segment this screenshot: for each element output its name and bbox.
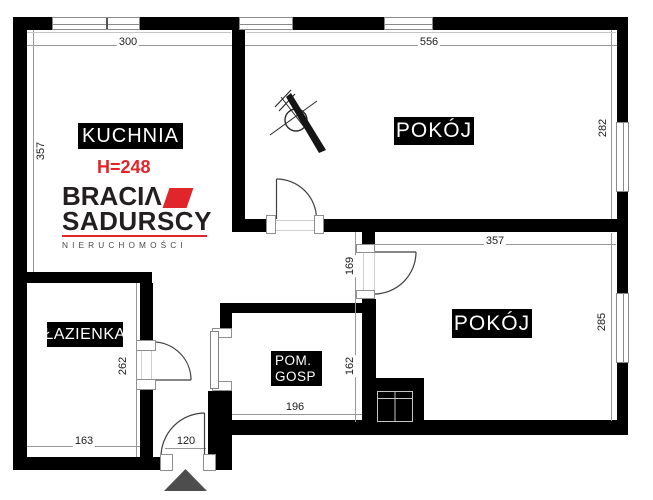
door-jamb-bathroom-bottom (136, 379, 156, 390)
dim-bathroom-width: 163 (73, 435, 95, 447)
wardrobe-icon (378, 392, 413, 422)
dim-kitchen-width: 300 (117, 36, 139, 48)
dim-bathroom-height: 262 (117, 355, 129, 377)
room-label-roomtop: POKÓJ (394, 117, 474, 145)
dim-kitchen-height: 357 (35, 140, 47, 162)
door-bathroom (153, 342, 191, 380)
room-label-bathroom: ŁAZIENKA (47, 322, 123, 347)
entrance-marker-icon (164, 469, 207, 491)
room-label-roombottom: POKÓJ (452, 309, 532, 338)
dim-roomtop-width: 556 (418, 36, 440, 48)
door-roomtop (277, 179, 317, 219)
dim-roombottom-height: 285 (596, 311, 608, 333)
door-roombottom (374, 252, 416, 294)
logo-line3: NIERUCHOMOŚCI (62, 240, 210, 250)
door-jamb-entrance-right (203, 454, 216, 471)
logo-red-flag-icon (162, 188, 193, 208)
door-jamb-roomtop-right (314, 215, 324, 234)
door-jamb-roombottom-top (356, 244, 375, 253)
room-label-kitchen: KUCHNIA (78, 123, 183, 149)
dim-roombottom-width: 357 (484, 235, 506, 247)
floor-plan: 300 556 357 282 357 285 169 162 262 163 … (0, 0, 653, 500)
room-label-utility: POM. GOSP (271, 351, 322, 386)
dim-utility-height: 162 (344, 355, 356, 377)
utility-label-line2: GOSP (275, 369, 316, 385)
agency-logo: BRACIΛ SADURSCY NIERUCHOMOŚCI (62, 184, 210, 250)
door-jamb-roomtop-left (266, 215, 276, 234)
plan-symbols-overlay (0, 0, 653, 500)
logo-line2: SADURSCY (62, 209, 210, 233)
door-jamb-roombottom-bottom (356, 290, 375, 299)
door-jamb-bathroom-top (136, 340, 156, 351)
utility-label-line1: POM. (275, 353, 312, 369)
lamp-point-icon (270, 90, 326, 153)
dim-entrance-width: 120 (175, 435, 197, 447)
dim-utility-width: 196 (284, 401, 306, 413)
door-jamb-entrance-left (160, 454, 173, 471)
door-leaf-utility (210, 331, 219, 389)
kitchen-height-note: H=248 (97, 157, 151, 178)
dim-hall-height: 169 (344, 255, 356, 277)
dim-roomtop-height: 282 (597, 117, 609, 139)
